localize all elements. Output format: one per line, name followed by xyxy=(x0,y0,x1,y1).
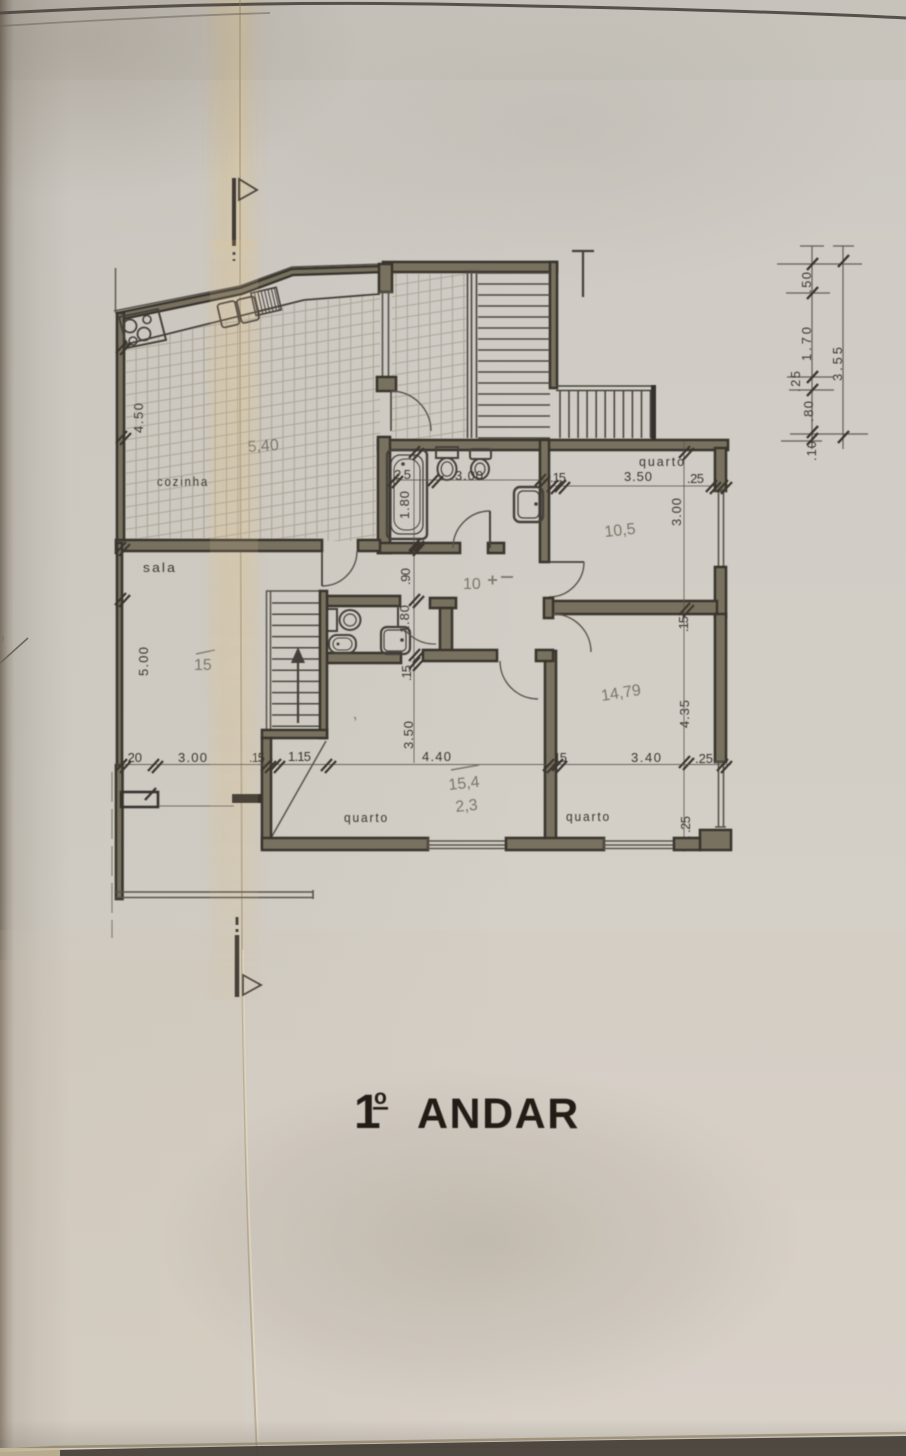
svg-text:.80: .80 xyxy=(801,401,816,422)
svg-text:.50: .50 xyxy=(799,272,814,293)
svg-text:15: 15 xyxy=(194,657,212,674)
svg-text:1.15: 1.15 xyxy=(288,749,311,764)
svg-text:.25: .25 xyxy=(678,816,693,833)
svg-text:15,4: 15,4 xyxy=(448,774,481,794)
svg-text:3.50: 3.50 xyxy=(624,469,652,484)
svg-text:.15: .15 xyxy=(550,470,566,485)
svg-text:.15: .15 xyxy=(551,750,567,765)
svg-text:1.70: 1.70 xyxy=(799,327,814,361)
svg-text:3.00: 3.00 xyxy=(455,468,483,483)
svg-text:quarto: quarto xyxy=(566,809,611,824)
svg-text:quarto: quarto xyxy=(639,454,686,469)
svg-text:3.55: 3.55 xyxy=(830,347,845,381)
svg-text:cozinha: cozinha xyxy=(157,474,209,489)
svg-text:4.50: 4.50 xyxy=(131,403,146,433)
svg-text:.10: .10 xyxy=(804,441,819,461)
svg-text:10,5: 10,5 xyxy=(604,521,637,541)
svg-text:3.40: 3.40 xyxy=(631,750,661,765)
svg-text:quarto: quarto xyxy=(344,810,389,825)
svg-text:3.00: 3.00 xyxy=(178,750,207,765)
svg-text:10: 10 xyxy=(463,576,481,593)
svg-text:3.50: 3.50 xyxy=(401,721,416,749)
svg-text:.20: .20 xyxy=(124,750,142,765)
svg-text:4.40: 4.40 xyxy=(422,749,451,764)
svg-text:.90: .90 xyxy=(398,568,413,585)
svg-text:sala: sala xyxy=(143,560,177,575)
svg-text:3.00: 3.00 xyxy=(669,498,684,526)
svg-text:ANDAR: ANDAR xyxy=(417,1090,580,1138)
svg-text:1.80: 1.80 xyxy=(397,491,412,519)
svg-text:5.00: 5.00 xyxy=(136,647,151,676)
svg-text:.25: .25 xyxy=(695,751,713,766)
svg-text:.25: .25 xyxy=(687,471,704,486)
svg-text:o: o xyxy=(374,1086,387,1109)
svg-text:2,3: 2,3 xyxy=(455,797,479,816)
svg-text:.25: .25 xyxy=(788,371,803,392)
svg-text:.15: .15 xyxy=(399,665,414,681)
